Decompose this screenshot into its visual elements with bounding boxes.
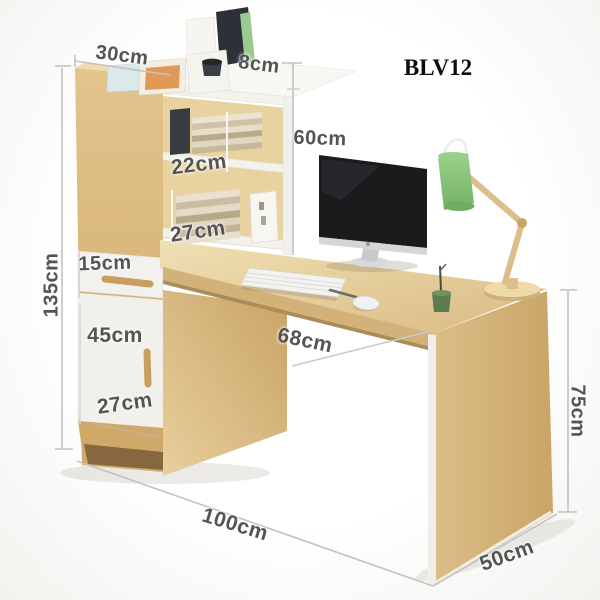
dimension-label-60cm: 60cm	[293, 127, 347, 152]
apple-logo-icon	[366, 242, 370, 246]
furniture-product-image: 30cm 8cm 60cm 22cm 27cm 15cm 135cm 45cm …	[0, 0, 600, 600]
door-handle	[147, 352, 148, 384]
dimension-label-15cm: 15cm	[78, 252, 132, 277]
dimension-label-75cm: 75cm	[566, 384, 589, 437]
imac-monitor	[319, 155, 427, 272]
lamp-arm-upper	[470, 178, 522, 223]
drawer-handle	[105, 279, 150, 284]
monitor-stand	[361, 248, 379, 262]
dimension-label-135cm: 135cm	[41, 253, 64, 318]
dimension-label-8cm: 8cm	[237, 51, 281, 79]
lamp-arm-lower	[505, 223, 522, 282]
desk-lamp	[438, 140, 540, 301]
product-code-label: BLV12	[404, 55, 472, 81]
product-photo	[0, 0, 600, 600]
dimension-label-45cm: 45cm	[87, 324, 143, 348]
